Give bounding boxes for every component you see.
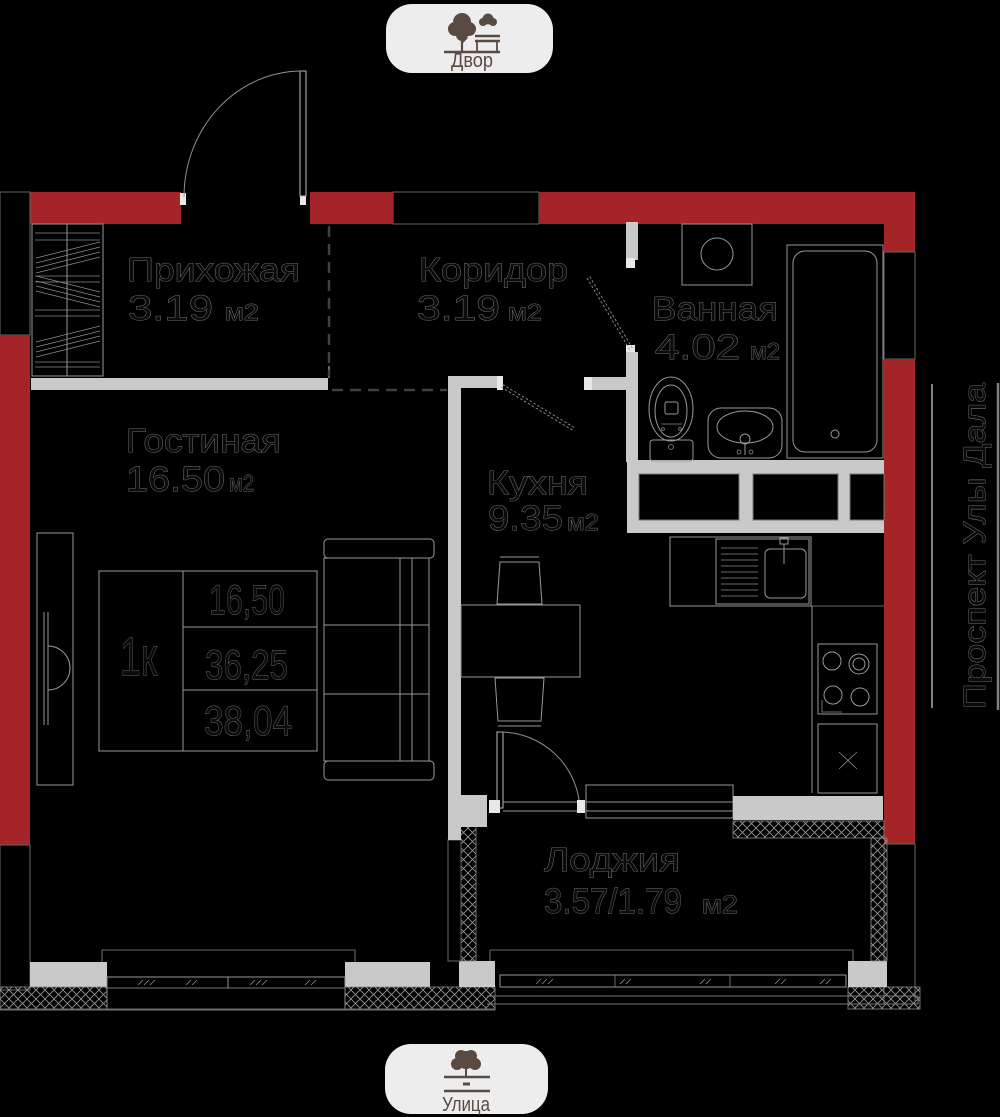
- svg-text:м2: м2: [567, 509, 599, 535]
- svg-text:3.57/1.79: 3.57/1.79: [544, 882, 682, 921]
- svg-text:Прихожая: Прихожая: [127, 251, 300, 288]
- svg-text:Гостиная: Гостиная: [126, 422, 281, 459]
- svg-text:3.19: 3.19: [128, 289, 213, 328]
- svg-text:38,04: 38,04: [204, 697, 292, 744]
- svg-text:4.02: 4.02: [655, 328, 740, 367]
- svg-text:Улица: Улица: [442, 1094, 491, 1116]
- svg-text:Кухня: Кухня: [487, 464, 588, 501]
- svg-text:Ванная: Ванная: [652, 290, 778, 327]
- svg-text:м2: м2: [225, 299, 259, 325]
- svg-text:Двор: Двор: [451, 50, 493, 72]
- svg-text:1к: 1к: [120, 627, 157, 687]
- svg-text:36,25: 36,25: [205, 641, 288, 688]
- svg-text:м2: м2: [702, 891, 738, 919]
- svg-text:м2: м2: [229, 470, 254, 496]
- svg-text:Коридор: Коридор: [419, 251, 568, 288]
- svg-text:16.50: 16.50: [126, 460, 225, 499]
- svg-text:м2: м2: [508, 299, 542, 325]
- svg-text:3.19: 3.19: [417, 289, 500, 328]
- svg-text:Проспект Улы Дала: Проспект Улы Дала: [957, 382, 992, 709]
- svg-text:9.35: 9.35: [488, 499, 563, 538]
- svg-text:16,50: 16,50: [209, 576, 285, 623]
- svg-text:м2: м2: [750, 338, 780, 364]
- svg-text:Лоджия: Лоджия: [544, 841, 680, 878]
